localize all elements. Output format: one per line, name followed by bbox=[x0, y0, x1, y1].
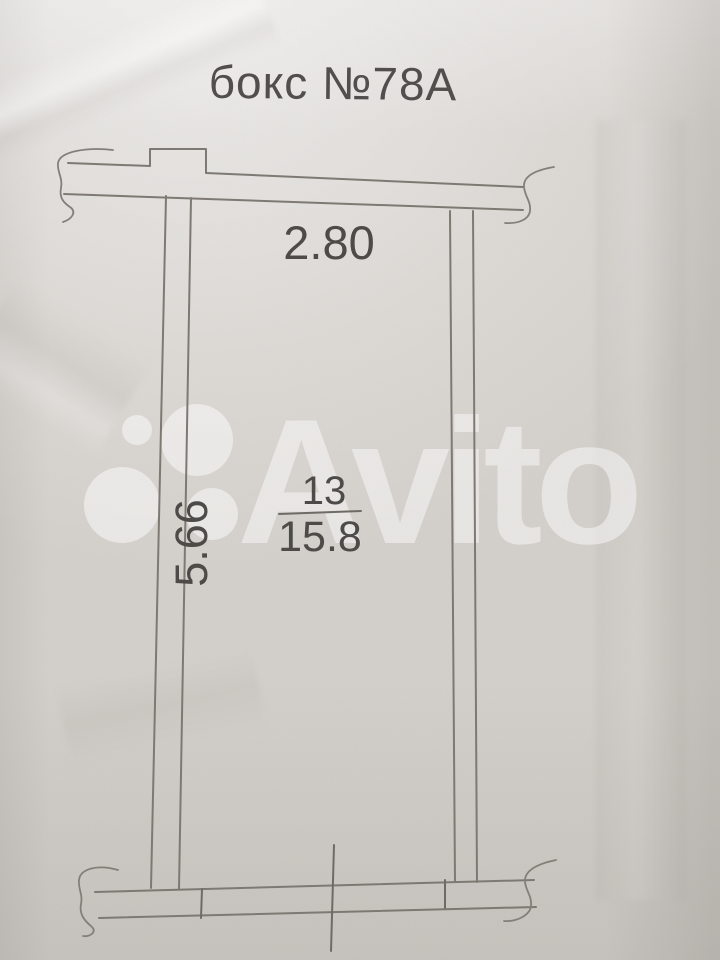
dimension-depth-label: 5.66 bbox=[166, 499, 217, 587]
wall-break-top-left bbox=[58, 149, 113, 222]
scanned-floor-plan-page: Avito 2.80 5.66 13 15.8 бокс №78А bbox=[0, 0, 720, 960]
top-wall-outer-line bbox=[68, 149, 523, 187]
bottom-wall-outer-line bbox=[99, 907, 536, 918]
room-number-label: 13 bbox=[302, 469, 347, 513]
bottom-wall-inner-line bbox=[95, 880, 534, 892]
gate-axis-line bbox=[331, 845, 334, 951]
floor-plan-drawing: 2.80 5.66 13 15.8 bbox=[0, 0, 720, 960]
right-wall-inner-line bbox=[450, 211, 455, 882]
room-area-label: 15.8 bbox=[278, 513, 362, 561]
right-wall-outer-line bbox=[473, 211, 477, 882]
page-title: бокс №78А bbox=[208, 55, 457, 112]
wall-break-bottom-right bbox=[504, 860, 556, 921]
dimension-width-label: 2.80 bbox=[283, 216, 374, 269]
wall-break-bottom-left bbox=[79, 867, 118, 936]
wall-break-top-right bbox=[505, 167, 554, 223]
dimension-tick-left bbox=[201, 889, 202, 918]
left-wall-outer-line bbox=[151, 196, 166, 888]
top-wall-inner-line bbox=[64, 194, 523, 210]
